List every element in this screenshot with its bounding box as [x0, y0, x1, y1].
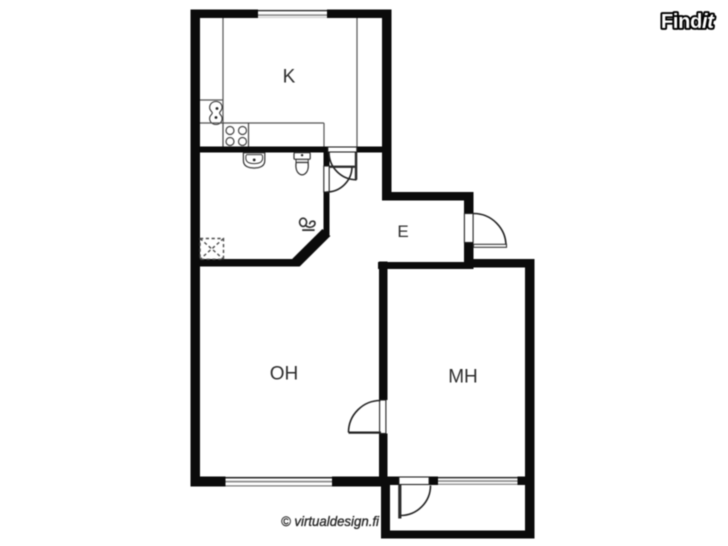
svg-text:K: K — [283, 67, 296, 88]
svg-text:OH: OH — [270, 364, 299, 385]
svg-text:Findit: Findit — [661, 11, 715, 33]
svg-text:MH: MH — [448, 367, 478, 388]
svg-text:E: E — [397, 222, 408, 241]
svg-text:© virtualdesign.fi: © virtualdesign.fi — [281, 513, 380, 529]
